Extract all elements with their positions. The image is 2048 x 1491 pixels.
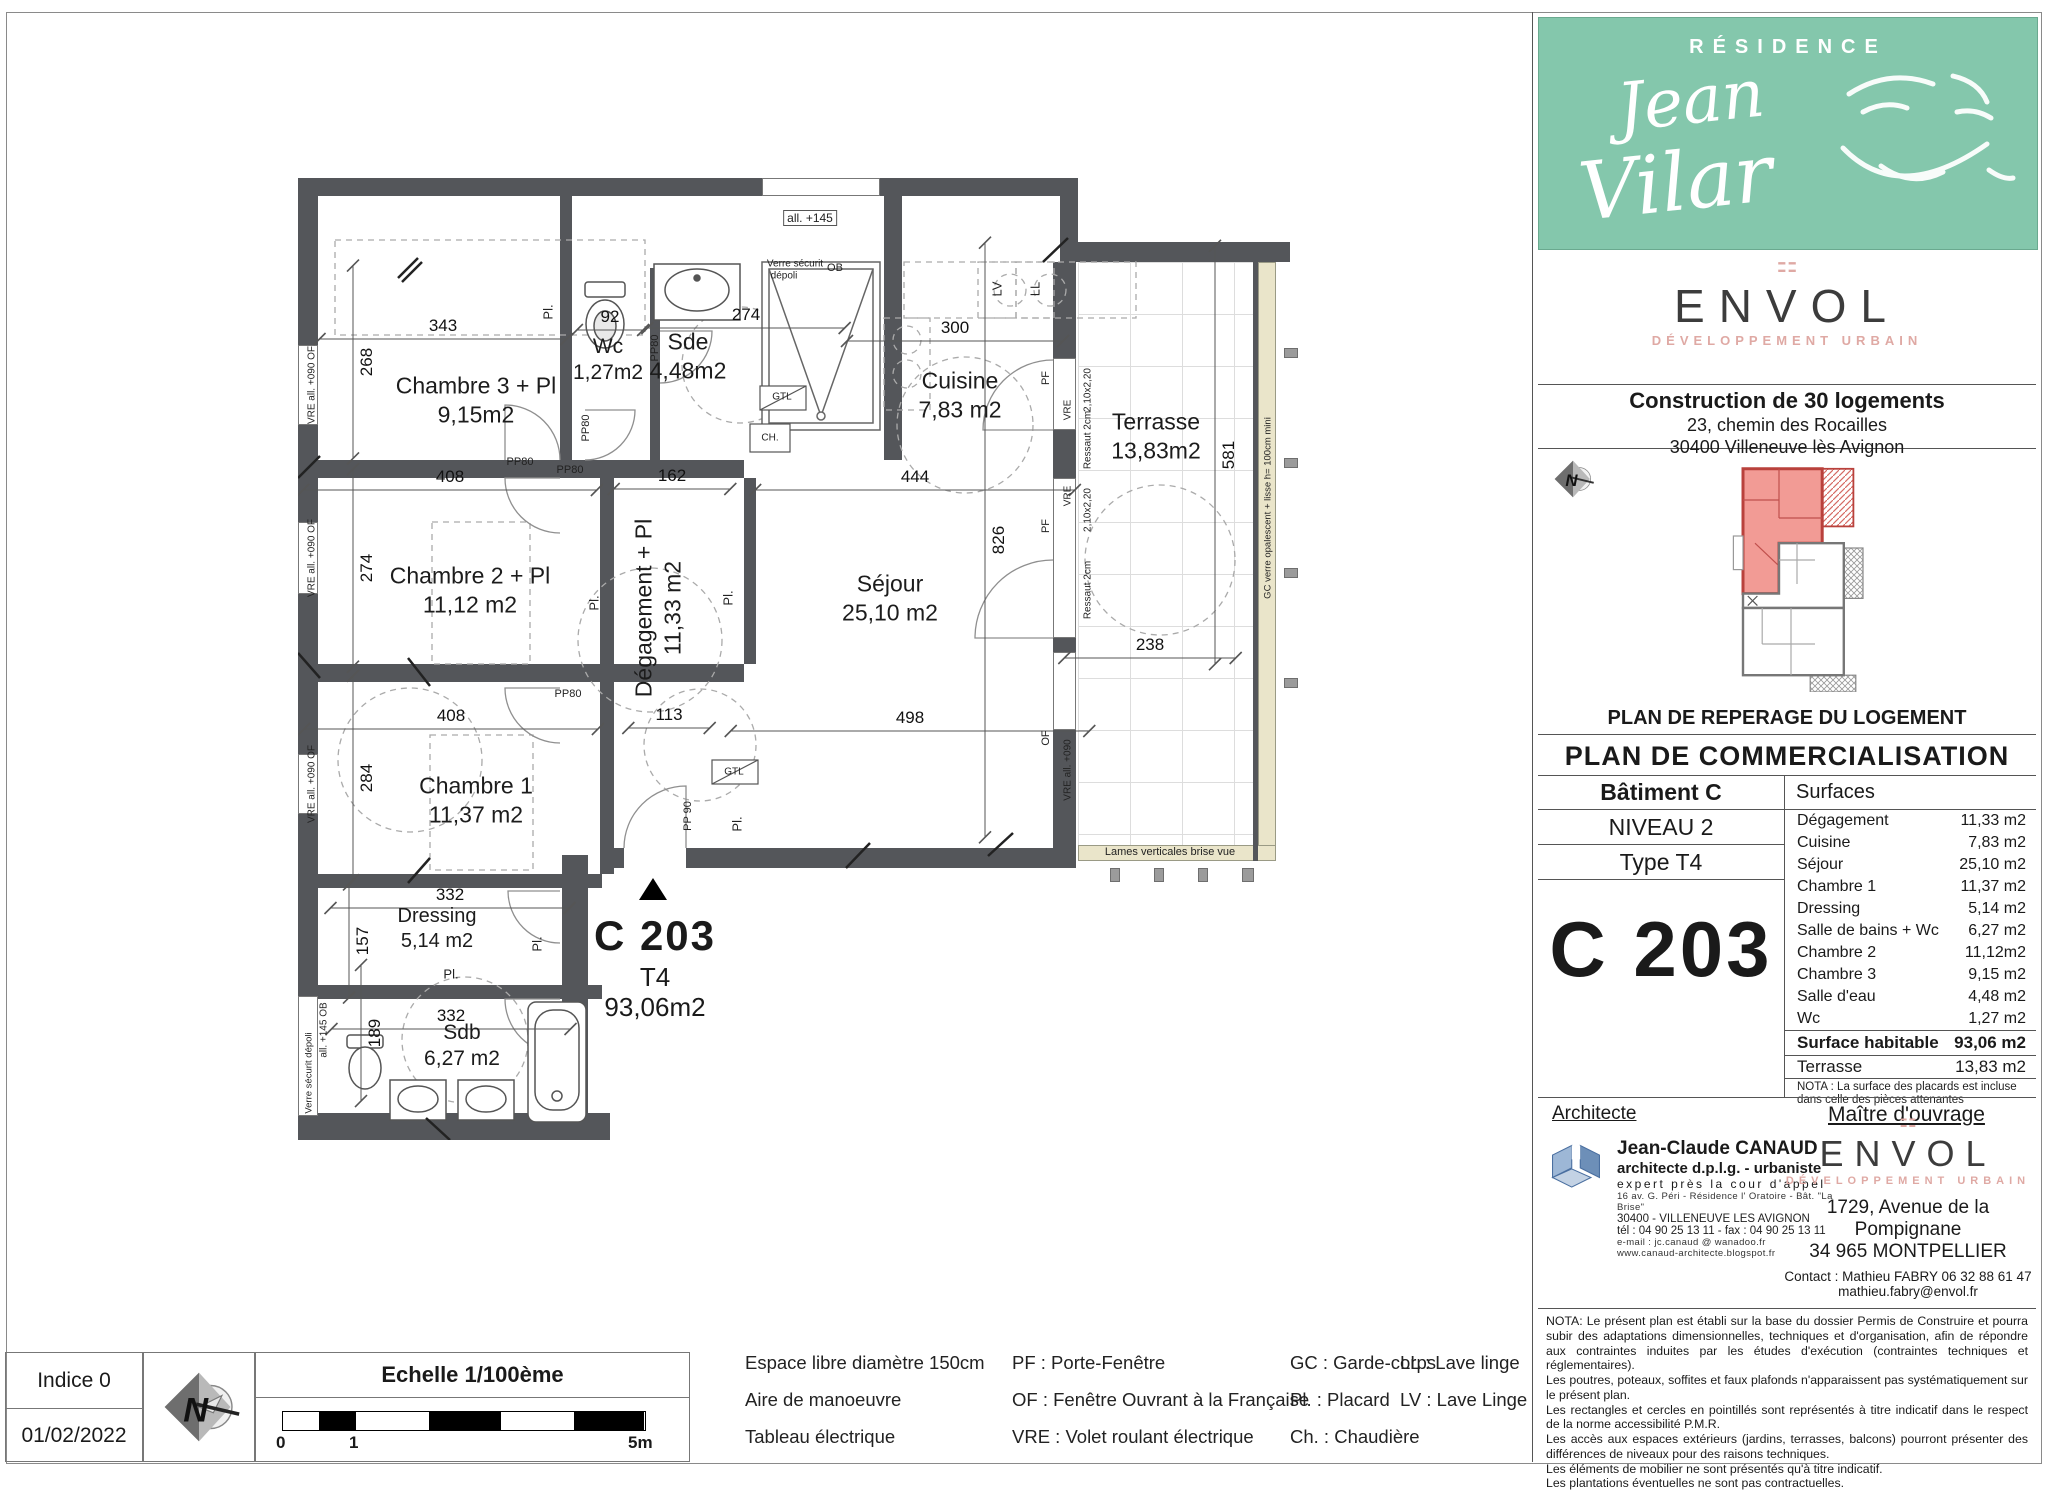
plan-annotation: LV <box>990 282 1005 297</box>
plan-annotation: Ressaut 2cm <box>1083 411 1094 469</box>
envol-crest-icon: ⚏ <box>1783 1108 2033 1133</box>
plan-annotation: PF <box>1040 371 1052 385</box>
canaud-cube-logo <box>1543 1138 1609 1202</box>
compass-box: N <box>143 1352 255 1462</box>
theatre-mask-icon <box>1829 60 2019 210</box>
plan-annotation: all. +145 OB <box>319 1002 330 1057</box>
owner-contact: Contact : Mathieu FABRY 06 32 88 61 47 <box>1783 1269 2033 1284</box>
project-address-block: Construction de 30 logements 23, chemin … <box>1538 384 2036 449</box>
nota-paragraph: Les poutres, poteaux, soffites et faux p… <box>1546 1373 2028 1403</box>
scale-tick-0: 0 <box>276 1433 285 1453</box>
room-label: Séjour25,10 m2 <box>842 569 938 627</box>
surface-row-value: 11,12m2 <box>1965 942 2026 964</box>
surface-terrace-label: Terrasse <box>1797 1056 1862 1078</box>
plan-annotation: Pl. <box>721 590 736 605</box>
legend-item: LL : Lave linge <box>1400 1352 1520 1374</box>
nota-paragraph: Les éléments de mobilier ne sont présent… <box>1546 1462 2028 1477</box>
surface-row-value: 11,37 m2 <box>1960 876 2026 898</box>
plan-annotation: PP80 <box>555 688 582 700</box>
surface-row-label: Chambre 1 <box>1797 876 1876 898</box>
entry-arrow-icon <box>639 878 667 900</box>
plan-annotation: Pl. <box>530 936 545 951</box>
residence-label: RÉSIDENCE <box>1539 36 2037 59</box>
room-name: Sde <box>650 327 727 356</box>
floor-plan: Chambre 3 + Pl9,15m2Wc1,27m2Sde4,48m2Cui… <box>298 178 1290 1140</box>
dimension-label: 332 <box>437 1006 465 1026</box>
room-label: Sde4,48m2 <box>650 327 727 385</box>
nota-block: NOTA: Le présent plan est établi sur la … <box>1538 1308 2036 1460</box>
room-area: 11,12 m2 <box>390 590 550 619</box>
plan-annotation: PF <box>1040 519 1052 533</box>
plan-annotation: 2,10x2,20 <box>1083 368 1094 412</box>
surface-row: Chambre 39,15 m2 <box>1784 964 2036 986</box>
surface-row-label: Chambre 2 <box>1797 942 1876 964</box>
surface-row-value: 4,48 m2 <box>1968 986 2026 1008</box>
surface-row-label: Wc <box>1797 1008 1820 1030</box>
dimension-label: 274 <box>357 554 377 582</box>
room-area: 4,48m2 <box>650 356 727 385</box>
svg-text:N: N <box>183 1391 209 1429</box>
nota-paragraph: Les rectangles et cercles en pointillés … <box>1546 1403 2028 1433</box>
owner-block: ⚏ ENVOL DÉVELOPPEMENT URBAIN 1729, Avenu… <box>1783 1108 2033 1299</box>
plan-annotation: PP80 <box>557 464 584 476</box>
dimension-label: 498 <box>896 708 924 728</box>
room-area: 9,15m2 <box>396 400 556 429</box>
plan-annotation: GTL <box>772 392 791 403</box>
plan-annotation: PP 90 <box>682 801 694 831</box>
envol-tagline: DÉVELOPPEMENT URBAIN <box>1538 333 2036 348</box>
legend-item: Espace libre diamètre 150cm <box>745 1352 985 1374</box>
nota-paragraph: NOTA: Le présent plan est établi sur la … <box>1546 1314 2028 1373</box>
plan-annotation: Verre sécurit dépoli <box>304 1032 315 1113</box>
compass-icon: N <box>1550 456 1596 502</box>
legend-item: OF : Fenêtre Ouvrant à la Française <box>1012 1389 1309 1411</box>
plan-annotation: PP80 <box>649 335 661 362</box>
surface-row: Cuisine7,83 m2 <box>1784 832 2036 854</box>
surface-row-label: Chambre 3 <box>1797 964 1876 986</box>
building-label: Bâtiment C <box>1538 776 1784 810</box>
plan-annotation: Pl. <box>730 816 745 831</box>
plan-annotation: VRE all. +090 <box>1063 739 1074 800</box>
surface-row: Dressing5,14 m2 <box>1784 898 2036 920</box>
nota-paragraph: Les plantations éventuelles ne sont pas … <box>1546 1476 2028 1491</box>
owner-tagline: DÉVELOPPEMENT URBAIN <box>1783 1175 2033 1187</box>
room-label: Chambre 2 + Pl11,12 m2 <box>390 561 550 619</box>
legend-item: Ch. : Chaudière <box>1290 1426 1420 1448</box>
dimension-label: 162 <box>658 466 686 486</box>
envol-brand: ENVOL <box>1538 279 2036 333</box>
room-label: Terrasse13,83m2 <box>1111 407 1201 465</box>
plan-annotation: Pl. <box>587 595 602 610</box>
plan-annotation: 2,10x2,20 <box>1083 488 1094 532</box>
plan-annotation: Pl. <box>443 967 458 982</box>
surface-row-label: Salle de bains + Wc <box>1797 920 1939 942</box>
surface-habitable-label: Surface habitable <box>1797 1031 1939 1055</box>
dimension-label: 113 <box>655 705 682 725</box>
surface-row-value: 11,33 m2 <box>1960 810 2026 832</box>
room-label: Sdb6,27 m2 <box>424 1020 500 1073</box>
dimension-label: 189 <box>365 1019 385 1047</box>
residence-name-line2: Vilar <box>1575 126 1777 239</box>
unit-id-column: Bâtiment C NIVEAU 2 Type T4 C 203 <box>1538 776 1785 1097</box>
plan-annotation: GTL <box>724 767 743 778</box>
dimension-label: 157 <box>353 927 373 955</box>
unit-type: T4 <box>565 962 745 993</box>
surfaces-column: Surfaces Dégagement11,33 m2Cuisine7,83 m… <box>1784 776 2036 1097</box>
legend-item: LV : Lave Linge <box>1400 1389 1527 1411</box>
owner-addr1: 1729, Avenue de la Pompignane <box>1783 1197 2033 1241</box>
dimension-label: 284 <box>357 764 377 792</box>
surface-row: Salle de bains + Wc6,27 m2 <box>1784 920 2036 942</box>
room-name: Wc <box>573 334 643 360</box>
legend-item: VRE : Volet roulant électrique <box>1012 1426 1254 1448</box>
revision-box: Indice 0 01/02/2022 <box>5 1352 143 1462</box>
plan-annotation: Lames verticales brise vue <box>1105 846 1235 858</box>
legend-item: Tableau électrique <box>745 1426 895 1448</box>
room-label: Cuisine7,83 m2 <box>918 366 1001 424</box>
project-address1: 23, chemin des Rocailles <box>1538 415 2036 436</box>
room-label: Dressing5,14 m2 <box>398 904 477 954</box>
plan-annotation: OF <box>1040 730 1052 745</box>
plan-annotation: dépoli <box>771 271 798 282</box>
room-name: Chambre 3 + Pl <box>396 371 556 400</box>
legend-item: Aire de manoeuvre <box>745 1389 901 1411</box>
plan-annotation: VRE <box>1063 486 1074 507</box>
surface-row-label: Salle d'eau <box>1797 986 1876 1008</box>
surface-row-value: 5,14 m2 <box>1968 898 2026 920</box>
architect-title: Architecte <box>1552 1103 1636 1125</box>
surface-row-label: Dégagement <box>1797 810 1889 832</box>
surface-row: Séjour25,10 m2 <box>1784 854 2036 876</box>
room-area: 7,83 m2 <box>918 395 1001 424</box>
key-plan-map <box>1666 452 1916 692</box>
dimension-label: 343 <box>429 316 457 336</box>
dimension-label: 581 <box>1219 441 1239 469</box>
surface-row: Salle d'eau4,48 m2 <box>1784 986 2036 1008</box>
dimension-label: 300 <box>941 318 969 338</box>
room-label: Wc1,27m2 <box>573 334 643 387</box>
surface-row-value: 1,27 m2 <box>1968 1008 2026 1030</box>
room-name: Dégagement + Pl <box>629 519 658 697</box>
surfaces-rows: Dégagement11,33 m2Cuisine7,83 m2Séjour25… <box>1784 810 2036 1030</box>
developer-logo-block: ⚏ ENVOL DÉVELOPPEMENT URBAIN <box>1538 248 2036 385</box>
key-plan-block: N <box>1538 448 2036 734</box>
type-label: Type T4 <box>1538 845 1784 880</box>
svg-text:N: N <box>1565 471 1578 490</box>
document-title: PLAN DE COMMERCIALISATION <box>1538 734 2036 776</box>
room-label: Chambre 111,37 m2 <box>419 771 533 829</box>
dimension-label: 408 <box>436 467 464 487</box>
owner-brand: ENVOL <box>1783 1133 2033 1175</box>
unit-code: C 203 <box>565 912 745 960</box>
plan-annotation: PP80 <box>580 415 592 442</box>
surfaces-header: Surfaces <box>1784 776 2036 810</box>
scale-tick-5m: 5m <box>628 1433 653 1453</box>
key-plan-caption: PLAN DE REPERAGE DU LOGEMENT <box>1538 707 2036 730</box>
scale-box: Echelle 1/100ème 0 1 5m <box>255 1352 690 1462</box>
revision-date: 01/02/2022 <box>6 1409 142 1463</box>
unit-area: 93,06m2 <box>565 992 745 1023</box>
room-area: 5,14 m2 <box>398 929 477 954</box>
legend-item: PF : Porte-Fenêtre <box>1012 1352 1165 1374</box>
surface-row-label: Cuisine <box>1797 832 1850 854</box>
plan-annotation: PP80 <box>507 456 534 468</box>
scale-label: Echelle 1/100ème <box>256 1353 689 1398</box>
surface-row-value: 9,15 m2 <box>1968 964 2026 986</box>
surface-row: Wc1,27 m2 <box>1784 1008 2036 1030</box>
revision-index: Indice 0 <box>6 1353 142 1409</box>
room-area: 25,10 m2 <box>842 598 938 627</box>
room-area: 13,83m2 <box>1111 436 1201 465</box>
unit-table: Bâtiment C NIVEAU 2 Type T4 C 203 Surfac… <box>1538 776 2036 1097</box>
dimension-label: 274 <box>732 305 760 325</box>
dimension-label: 332 <box>436 885 464 905</box>
plan-annotation: VRE all. +090 OF <box>307 346 318 424</box>
scale-bar <box>282 1411 646 1431</box>
surface-row: Chambre 111,37 m2 <box>1784 876 2036 898</box>
plan-annotation: Pl. <box>541 304 556 319</box>
room-label: Chambre 3 + Pl9,15m2 <box>396 371 556 429</box>
surface-habitable-row: Surface habitable 93,06 m2 <box>1784 1030 2036 1056</box>
title-block-panel: RÉSIDENCE Jean Vilar ⚏ ENVOL DÉVELOPPEME… <box>1532 12 2042 1462</box>
scale-tick-1: 1 <box>349 1433 358 1453</box>
dimension-label: 826 <box>989 526 1009 554</box>
surface-terrace-value: 13,83 m2 <box>1955 1056 2026 1078</box>
surface-terrace-row: Terrasse 13,83 m2 <box>1784 1056 2036 1079</box>
room-area: 6,27 m2 <box>424 1046 500 1072</box>
room-area: 1,27m2 <box>573 360 643 386</box>
room-name: Chambre 2 + Pl <box>390 561 550 590</box>
plan-annotation: GC verre opalescent + lisse h= 100cm min… <box>1263 417 1274 599</box>
plan-annotation: LL <box>1028 282 1043 296</box>
plan-annotation: all. +145 <box>783 210 837 226</box>
plan-annotation: VRE <box>1063 400 1074 421</box>
plan-annotation: VRE all. +090 OF <box>307 519 318 597</box>
dimension-label: 444 <box>901 467 929 487</box>
level-label: NIVEAU 2 <box>1538 810 1784 845</box>
dimension-label: 408 <box>437 706 465 726</box>
dimension-label: 238 <box>1136 635 1164 655</box>
room-name: Cuisine <box>918 366 1001 395</box>
surface-row-label: Dressing <box>1797 898 1860 920</box>
owner-addr2: 34 965 MONTPELLIER <box>1783 1241 2033 1263</box>
surface-row-value: 25,10 m2 <box>1959 854 2026 876</box>
surface-row-value: 7,83 m2 <box>1968 832 2026 854</box>
surface-row: Chambre 211,12m2 <box>1784 942 2036 964</box>
room-area: 11,37 m2 <box>419 800 533 829</box>
room-name: Dressing <box>398 904 477 929</box>
legend: Espace libre diamètre 150cmAire de manoe… <box>700 1346 1540 1462</box>
room-area: 11,33 m2 <box>658 519 687 697</box>
dimension-label: 268 <box>357 348 377 376</box>
envol-crest-icon: ⚏ <box>1538 250 2036 279</box>
surface-row-label: Séjour <box>1797 854 1843 876</box>
plan-annotation: Ressaut 2cm <box>1083 561 1094 619</box>
unit-code-large: C 203 <box>1538 904 1784 995</box>
plan-annotation: Verre sécurit <box>767 259 823 270</box>
plan-annotation: OB <box>827 262 843 274</box>
room-name: Séjour <box>842 569 938 598</box>
surface-row: Dégagement11,33 m2 <box>1784 810 2036 832</box>
surface-row-value: 6,27 m2 <box>1968 920 2026 942</box>
residence-logo-block: RÉSIDENCE Jean Vilar <box>1538 17 2038 250</box>
plan-annotation: VRE all. +090 OF <box>307 745 318 823</box>
dimension-label: 92 <box>601 307 620 327</box>
nota-paragraph: Les accès aux espaces extérieurs (jardin… <box>1546 1432 2028 1462</box>
room-name: Terrasse <box>1111 407 1201 436</box>
surface-habitable-value: 93,06 m2 <box>1954 1031 2026 1055</box>
legend-item: Pl. : Placard <box>1290 1389 1390 1411</box>
room-label: Dégagement + Pl11,33 m2 <box>629 519 687 697</box>
owner-email: mathieu.fabry@envol.fr <box>1783 1284 2033 1299</box>
plan-annotation: CH. <box>761 433 778 444</box>
room-name: Chambre 1 <box>419 771 533 800</box>
compass-icon: N <box>156 1364 242 1450</box>
project-title: Construction de 30 logements <box>1538 388 2036 414</box>
